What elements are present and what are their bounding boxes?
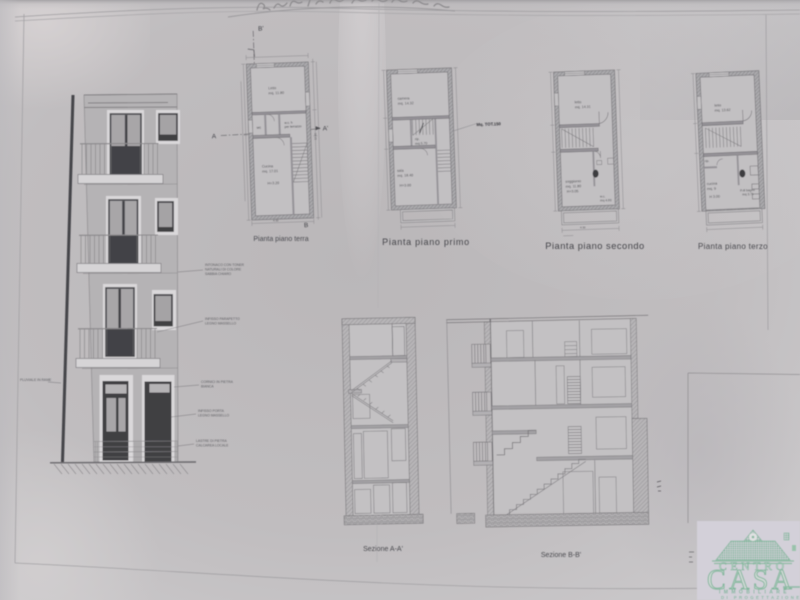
svg-text:INFISSO PARAPETTO: INFISSO PARAPETTO xyxy=(205,317,240,321)
svg-text:4.30: 4.30 xyxy=(273,219,279,223)
svg-text:per terrazzo: per terrazzo xyxy=(284,124,301,129)
svg-text:Cucina: Cucina xyxy=(262,164,273,168)
svg-text:Sezione A-A': Sezione A-A' xyxy=(363,546,403,553)
svg-text:letto: letto xyxy=(714,103,721,107)
svg-text:mq. 14.32: mq. 14.32 xyxy=(398,101,414,106)
svg-text:mq. 13.62: mq. 13.62 xyxy=(714,108,730,113)
svg-text:mq. 11.80: mq. 11.80 xyxy=(268,91,284,96)
svg-text:LEGNO MASSELLO: LEGNO MASSELLO xyxy=(198,414,229,418)
svg-text:camera: camera xyxy=(397,96,409,100)
svg-text:mq. 9: mq. 9 xyxy=(707,187,716,191)
svg-text:Pianta piano terzo: Pianta piano terzo xyxy=(698,242,768,251)
svg-text:PLUVIALE IN RAME: PLUVIALE IN RAME xyxy=(20,378,52,382)
svg-text:CORNICI IN PIETRA: CORNICI IN PIETRA xyxy=(201,380,234,384)
svg-text:mq 3.71: mq 3.71 xyxy=(742,192,754,197)
svg-text:H=3.20: H=3.20 xyxy=(267,181,279,185)
svg-text:sala: sala xyxy=(397,169,404,173)
svg-text:B: B xyxy=(304,222,309,229)
svg-text:wc: wc xyxy=(256,126,261,130)
svg-text:mq 5.70: mq 5.70 xyxy=(415,141,427,145)
svg-text:12.45: 12.45 xyxy=(314,133,318,140)
svg-text:SABBIA CHIARO: SABBIA CHIARO xyxy=(205,272,232,276)
svg-text:H 3.00: H 3.00 xyxy=(709,194,720,198)
svg-text:mq 4.80: mq 4.80 xyxy=(600,198,612,202)
svg-text:mq. 18.40: mq. 18.40 xyxy=(397,173,413,178)
svg-text:rip.: rip. xyxy=(705,159,710,163)
svg-text:H=3.00: H=3.00 xyxy=(400,183,412,187)
svg-text:mq. 14.31: mq. 14.31 xyxy=(575,105,591,110)
svg-text:mq. 17.01: mq. 17.01 xyxy=(262,169,278,174)
svg-text:A': A' xyxy=(323,125,329,132)
svg-text:CALCAREA LOCALE: CALCAREA LOCALE xyxy=(196,444,229,448)
svg-text:letto: letto xyxy=(575,100,582,104)
svg-text:NATURALI DI COLORE: NATURALI DI COLORE xyxy=(205,268,242,272)
svg-text:Pianta piano terra: Pianta piano terra xyxy=(253,236,308,243)
svg-text:cucina: cucina xyxy=(707,182,718,186)
svg-text:LEGNO MASSELLO: LEGNO MASSELLO xyxy=(205,322,236,326)
svg-text:Sezione B-B': Sezione B-B' xyxy=(541,552,581,559)
svg-text:BIANCA: BIANCA xyxy=(201,385,214,389)
svg-text:Letto: Letto xyxy=(268,86,276,90)
svg-text:DI PROGETTAZIONE: DI PROGETTAZIONE xyxy=(721,595,800,600)
svg-text:H=3.05: H=3.05 xyxy=(567,189,579,193)
svg-text:B': B' xyxy=(258,26,264,33)
svg-text:soggiorno: soggiorno xyxy=(565,179,581,184)
svg-text:Pianta piano secondo: Pianta piano secondo xyxy=(545,241,644,251)
svg-text:mq. 11.80: mq. 11.80 xyxy=(565,184,581,189)
svg-text:4.30: 4.30 xyxy=(580,226,586,230)
svg-text:Mq. TOT.150: Mq. TOT.150 xyxy=(476,121,501,127)
svg-text:LASTRE DI PIETRA: LASTRE DI PIETRA xyxy=(196,439,227,443)
svg-text:INTONACO CON TONER: INTONACO CON TONER xyxy=(205,263,245,267)
svg-text:INFISSO PORTA: INFISSO PORTA xyxy=(198,409,225,413)
svg-text:Pianta piano primo: Pianta piano primo xyxy=(382,237,470,247)
